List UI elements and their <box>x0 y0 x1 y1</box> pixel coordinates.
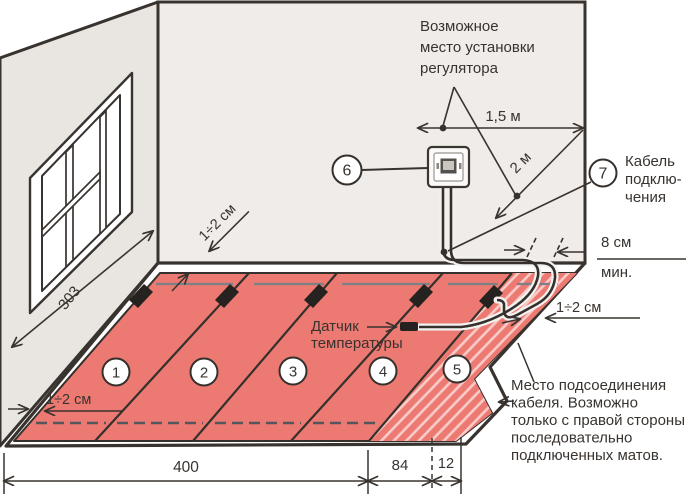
sensor-label-line: температуры <box>311 335 403 352</box>
note-line: кабеля. Возможно <box>511 395 638 412</box>
regulator-note-line: регулятора <box>420 60 499 77</box>
cable-label-line: подклю- <box>625 171 682 188</box>
marker-number: 4 <box>379 364 387 381</box>
dimension-label: мин. <box>601 264 632 281</box>
gap-label: 1÷2 см <box>46 392 91 408</box>
marker-7: 7 <box>590 160 617 187</box>
marker-1: 1 <box>103 359 130 386</box>
temperature-sensor <box>400 322 418 331</box>
marker-number: 7 <box>599 166 608 183</box>
note-line: последовательно <box>511 430 632 447</box>
cable-junction-dot <box>441 249 448 256</box>
marker-6: 6 <box>333 156 362 185</box>
installation-diagram: Возможное место установки регулятора 1,5… <box>0 0 688 496</box>
window-mullion-vertical-2 <box>100 111 106 234</box>
marker-number: 5 <box>453 362 461 379</box>
regulator-note-line: Возможное <box>420 18 499 35</box>
marker-5: 5 <box>444 356 471 383</box>
diagram-canvas: Возможное место установки регулятора 1,5… <box>0 0 688 496</box>
marker-2: 2 <box>191 359 218 386</box>
marker-4: 4 <box>370 358 397 385</box>
note-line: Место подсоединения <box>511 377 666 394</box>
marker-number: 1 <box>112 365 120 382</box>
dimension-label: 8 см <box>601 234 631 251</box>
marker-number: 2 <box>200 365 208 382</box>
gap-label: 1÷2 см <box>556 300 601 316</box>
cable-label-line: Кабель <box>625 153 675 170</box>
sensor-label-line: Датчик <box>311 318 359 335</box>
marker-3: 3 <box>280 358 307 385</box>
dimension-label: 400 <box>173 459 199 476</box>
dimension-label: 84 <box>392 457 409 474</box>
marker-number: 6 <box>343 163 352 180</box>
note-line: подключенных матов. <box>511 447 663 464</box>
dimension-label: 1,5 м <box>485 108 520 125</box>
marker-number: 3 <box>289 364 297 381</box>
dimension-label: 12 <box>438 456 454 472</box>
note-line: только с правой стороны <box>511 412 685 429</box>
thermostat <box>428 147 469 187</box>
cable-label-line: чения <box>625 189 666 206</box>
regulator-note-line: место установки <box>420 39 535 56</box>
